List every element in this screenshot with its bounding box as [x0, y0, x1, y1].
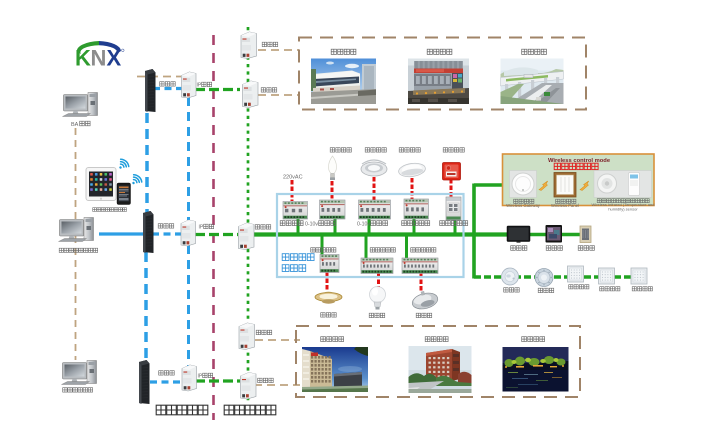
svg-text:X: X	[107, 46, 122, 71]
svg-text:0-10v: 0-10v	[357, 222, 370, 228]
svg-text:Wireless Gateway: Wireless Gateway	[506, 203, 541, 208]
svg-text:IP: IP	[199, 225, 204, 231]
svg-text:220vAC: 220vAC	[283, 175, 303, 181]
svg-text:N: N	[91, 46, 107, 71]
svg-text:BA: BA	[71, 122, 79, 128]
svg-text:IP: IP	[198, 374, 203, 380]
svg-text:0-10v: 0-10v	[305, 222, 318, 228]
svg-text:Wireless Panel: Wireless Panel	[551, 203, 579, 208]
svg-text:K: K	[75, 46, 91, 71]
svg-text:humidity) sensor: humidity) sensor	[608, 207, 638, 212]
svg-text:IP: IP	[197, 83, 202, 89]
